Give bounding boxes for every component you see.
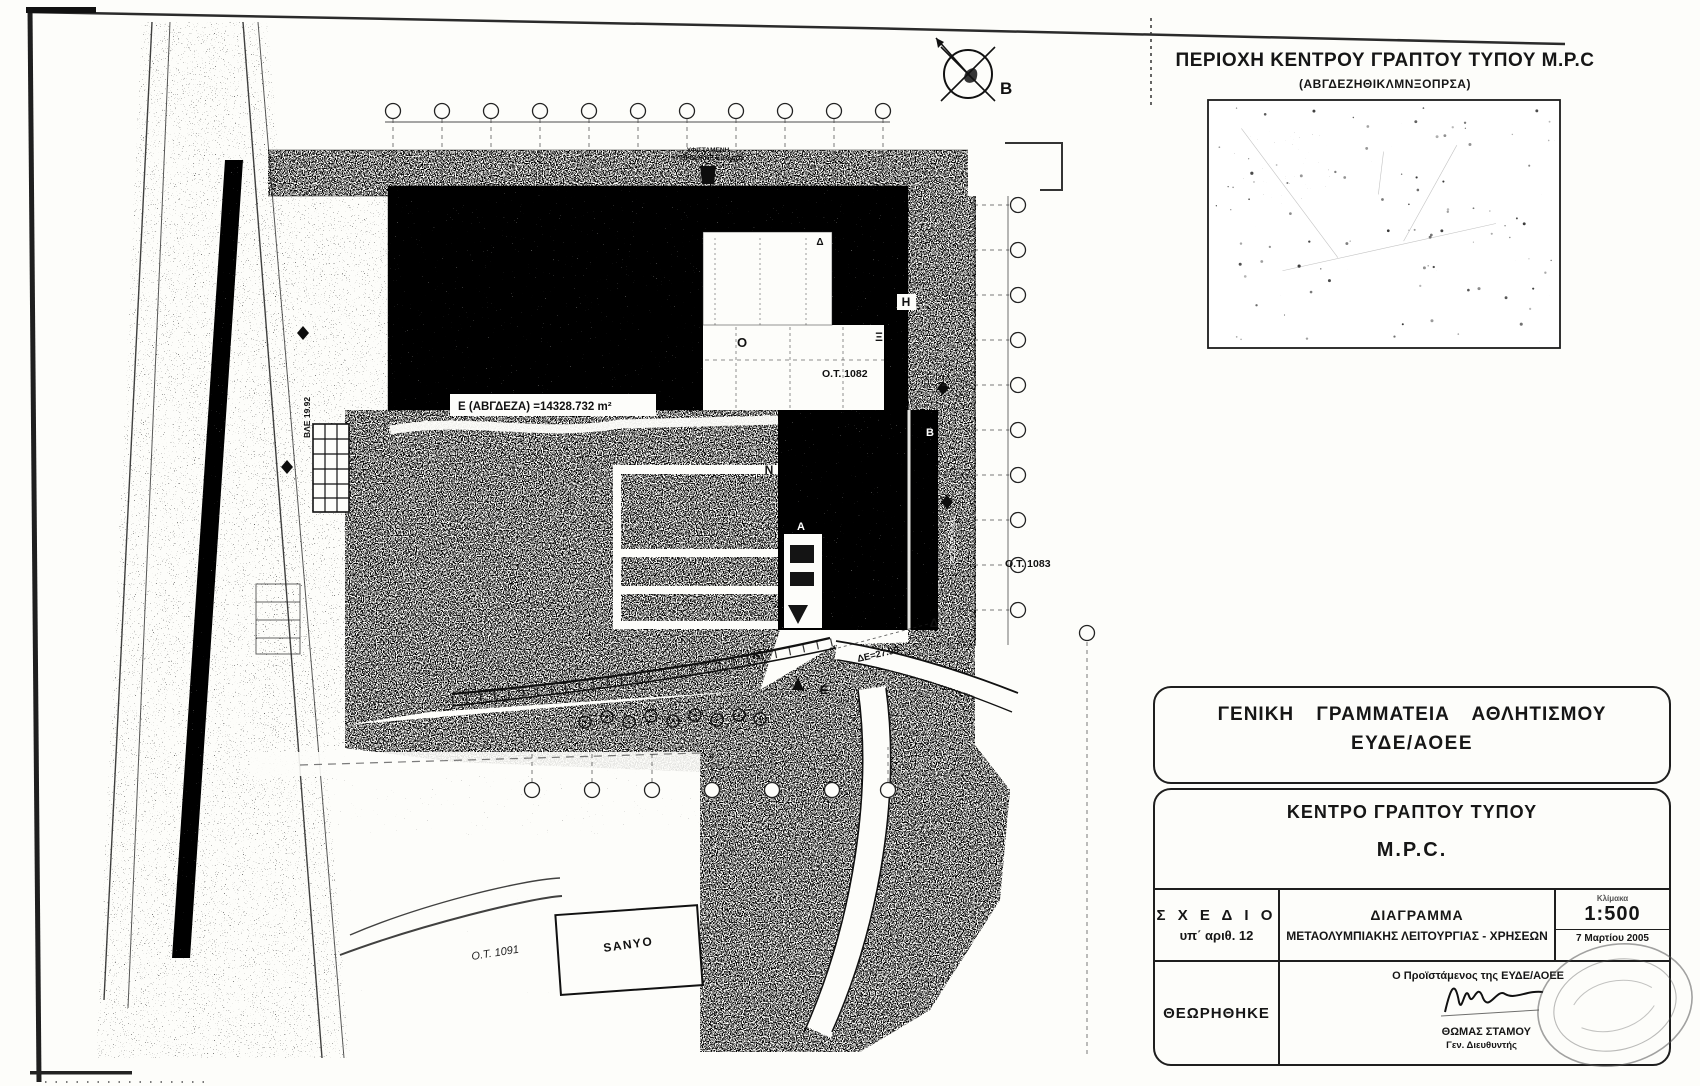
map-dot: [1248, 198, 1250, 200]
map-dot: [1433, 266, 1435, 268]
map-dot: [1414, 120, 1417, 123]
titleblock-drawing: ΚΕΝΤΡΟ ΓΡΑΠΤΟΥ ΤΥΠΟΥ Μ.Ρ.C. Σ Χ Ε Δ Ι Ο …: [1153, 788, 1671, 1066]
map-dot: [1248, 158, 1249, 159]
map-dot: [1417, 189, 1420, 192]
map-dot: [1549, 121, 1551, 123]
axis-circle: [1011, 333, 1026, 348]
map-dot: [1239, 263, 1242, 266]
map-dot: [1236, 107, 1237, 108]
map-dot: [1312, 110, 1315, 113]
axis-circle: [825, 783, 840, 798]
map-dot: [1535, 109, 1538, 112]
axis-circle: [582, 104, 597, 119]
boundary-letter: Ξ: [875, 330, 883, 344]
map-dot: [1260, 260, 1263, 263]
map-dot: [1216, 205, 1217, 206]
map-dot: [1308, 240, 1310, 242]
map-dot: [1544, 272, 1546, 274]
map-dot: [1452, 126, 1454, 128]
map-dot: [1365, 147, 1368, 150]
approval-row: ΘΕΩΡΗΘΗΚΕ Ο Προϊστάμενος της ΕΥΔΕ/ΑΟΕΕ Θ…: [1155, 960, 1669, 1064]
street-label: ΠΕΖΟΔΡΟΜΟΣ: [950, 515, 957, 565]
map-dot: [1300, 174, 1303, 177]
axis-circle: [1011, 288, 1026, 303]
map-dot: [1240, 339, 1241, 340]
scanned-site-plan-page: Ε (ΑΒΓΔΕΖΑ) =14328.732 m²: [0, 0, 1700, 1086]
map-dot: [1310, 291, 1313, 294]
map-dot: [1529, 308, 1531, 310]
map-dot: [1423, 107, 1425, 109]
map-dot: [1464, 122, 1466, 124]
drawing-date: 7 Μαρτίου 2005: [1556, 929, 1669, 944]
map-dot: [1387, 229, 1390, 232]
map-dot: [1227, 186, 1228, 187]
area-label: Ε (ΑΒΓΔΕΖΑ) =14328.732 m²: [458, 401, 612, 413]
bd-label: ΒΛΕ 19.92: [302, 397, 312, 438]
axis-circle: [1011, 468, 1026, 483]
titleblock-organization: ΓΕΝΙΚΗ ΓΡΑΜΜΑΤΕΙΑ ΑΘΛΗΤΙΣΜΟΥ ΕΥΔΕ/ΑΟΕΕ: [1153, 686, 1671, 784]
entrance-label-line2: ΥΠΗΡΕΣΙΑΚΗ ΕΙΣΟΔΟΣ: [672, 155, 744, 162]
axis-circle: [827, 104, 842, 119]
map-dot: [1289, 212, 1292, 215]
boundary-letter: Ε: [820, 683, 828, 697]
map-dot: [1366, 125, 1369, 128]
map-dot: [1532, 288, 1534, 290]
inset-key-map: [1208, 100, 1560, 348]
axis-circle: [876, 104, 891, 119]
map-dot: [1276, 164, 1278, 166]
map-dot: [1269, 246, 1271, 248]
map-dot: [1512, 134, 1513, 135]
axis-circle: [484, 104, 499, 119]
approved-label: ΘΕΩΡΗΘΗΚΕ: [1155, 1005, 1278, 1022]
map-dot: [1473, 242, 1474, 243]
map-dot: [1520, 323, 1523, 326]
map-dot: [1286, 182, 1288, 184]
inset-map-subtitle: (ΑΒΓΔΕΖΗΘΙΚΛΜΝΞΟΠΡΣΑ): [1120, 77, 1650, 91]
axis-circle: [1011, 378, 1026, 393]
tree-icon: [694, 714, 696, 716]
approval-cell: ΘΕΩΡΗΘΗΚΕ: [1155, 962, 1280, 1064]
plan-number-cell: Σ Χ Ε Δ Ι Ο υπ΄ αριθ. 12: [1155, 890, 1280, 960]
map-dot: [1516, 217, 1518, 219]
map-dot: [1401, 174, 1402, 175]
map-dot: [1550, 260, 1551, 261]
entrance-label-line1: ΥΦΙΣΤΑΜΕΝΗ: [687, 147, 730, 154]
map-dot: [1343, 176, 1346, 179]
map-dot: [1423, 266, 1426, 269]
map-dot: [1447, 211, 1449, 213]
map-dot: [1320, 268, 1321, 269]
axis-circle: [645, 783, 660, 798]
tree-icon: [738, 714, 740, 716]
signatory-title: Γεν. Διευθυντής: [1446, 1040, 1517, 1051]
map-dot: [1548, 140, 1550, 142]
map-dot: [1255, 304, 1257, 306]
axis-circle: [1011, 603, 1026, 618]
axis-circle: [1011, 243, 1026, 258]
boundary-letter: Β: [926, 427, 934, 439]
map-dot: [1334, 171, 1336, 173]
boundary-letter: Κ: [753, 648, 762, 662]
map-dot: [1505, 296, 1508, 299]
map-dot: [1244, 275, 1247, 278]
map-dot: [1477, 287, 1480, 290]
axis-circle: [585, 783, 600, 798]
axis-circle: [881, 783, 896, 798]
block-label-ot1083: Ο.Τ. 1083: [1005, 558, 1051, 570]
map-dot: [1402, 323, 1404, 325]
project-abbreviation: Μ.Ρ.C.: [1155, 839, 1669, 862]
axis-circle: [1011, 198, 1026, 213]
map-dot: [1236, 336, 1238, 338]
map-dot: [1414, 229, 1416, 231]
scale-label: Κλίμακα: [1556, 894, 1669, 903]
tree-icon: [759, 718, 761, 720]
map-dot: [1528, 258, 1529, 259]
map-dot: [1345, 242, 1348, 245]
boundary-letter: Η: [902, 295, 911, 309]
map-dot: [1528, 165, 1530, 167]
axis-circle: [435, 104, 450, 119]
tree-icon: [584, 721, 586, 723]
drawing-title: ΔΙΑΓΡΑΜΜΑ: [1280, 907, 1554, 923]
map-dot: [1458, 333, 1460, 335]
north-arrow-icon: Β: [936, 38, 1012, 101]
axis-circle: [386, 104, 401, 119]
map-dot: [1442, 180, 1444, 182]
map-dot: [1230, 209, 1231, 210]
map-dot: [1232, 187, 1233, 188]
drawing-info-row: Σ Χ Ε Δ Ι Ο υπ΄ αριθ. 12 ΔΙΑΓΡΑΜΜΑ ΜΕΤΑΟ…: [1155, 888, 1669, 960]
map-dot: [1427, 265, 1429, 267]
map-dot: [1306, 337, 1308, 339]
map-dot: [1253, 181, 1254, 182]
map-dot: [1489, 210, 1490, 211]
map-dot: [1419, 285, 1421, 287]
tree-icon: [716, 719, 718, 721]
entrance-marker-icon: [700, 166, 716, 184]
axis-circle: [1080, 626, 1095, 641]
map-dot: [1219, 146, 1221, 148]
axis-circle: [680, 104, 695, 119]
axis-circle: [1011, 423, 1026, 438]
tree-icon: [628, 721, 630, 723]
map-dot: [1523, 222, 1526, 225]
signature-cell: Ο Προϊστάμενος της ΕΥΔΕ/ΑΟΕΕ ΘΩΜΑΣ ΣΤΑΜΟ…: [1280, 962, 1669, 1064]
organization-name: ΓΕΝΙΚΗ ΓΡΑΜΜΑΤΕΙΑ ΑΘΛΗΤΙΣΜΟΥ: [1155, 704, 1669, 726]
area-label-band: Ε (ΑΒΓΔΕΖΑ) =14328.732 m²: [450, 394, 656, 416]
map-dot: [1349, 240, 1351, 242]
map-dot: [1447, 208, 1449, 210]
map-dot: [1353, 117, 1354, 118]
block-label-ot1082: Ο.Τ. 1082: [822, 368, 868, 380]
map-dot: [1250, 172, 1253, 175]
inset-map-title: ΠΕΡΙΟΧΗ ΚΕΝΤΡΟΥ ΓΡΑΠΤΟΥ ΤΥΠΟΥ Μ.Ρ.C: [1120, 50, 1650, 72]
map-dot: [1430, 319, 1433, 322]
plan-number: υπ΄ αριθ. 12: [1155, 928, 1278, 943]
map-dot: [1467, 289, 1470, 292]
signatory-name: ΘΩΜΑΣ ΣΤΑΜΟΥ: [1442, 1026, 1531, 1038]
map-dot: [1504, 225, 1505, 226]
project-header: ΚΕΝΤΡΟ ΓΡΑΠΤΟΥ ΤΥΠΟΥ Μ.Ρ.C.: [1155, 790, 1669, 888]
project-title: ΚΕΝΤΡΟ ΓΡΑΠΤΟΥ ΤΥΠΟΥ: [1155, 802, 1669, 823]
map-dot: [1416, 176, 1418, 178]
axis-circle: [765, 783, 780, 798]
scale-value: 1:500: [1556, 903, 1669, 926]
drawing-subtitle: ΜΕΤΑΟΛΥΜΠΙΑΚΗΣ ΛΕΙΤΟΥΡΓΙΑΣ - ΧΡΗΣΕΩΝ: [1280, 929, 1554, 943]
signature-icon: [1439, 976, 1549, 1022]
axis-circle: [533, 104, 548, 119]
map-dot: [1468, 143, 1471, 146]
map-dot: [1473, 207, 1475, 209]
boundary-letter: Δ: [816, 237, 823, 248]
map-dot: [1491, 233, 1493, 235]
boundary-letter: Δ: [930, 616, 939, 630]
axis-circle: [778, 104, 793, 119]
tree-icon: [672, 720, 674, 722]
organization-unit: ΕΥΔΕ/ΑΟΕΕ: [1155, 733, 1669, 755]
map-dot: [1393, 335, 1395, 337]
north-letter: Β: [1000, 79, 1012, 98]
axis-circle: [631, 104, 646, 119]
map-dot: [1408, 203, 1410, 205]
drawing-title-cell: ΔΙΑΓΡΑΜΜΑ ΜΕΤΑΟΛΥΜΠΙΑΚΗΣ ΛΕΙΤΟΥΡΓΙΑΣ - Χ…: [1280, 890, 1554, 960]
plan-label: Σ Χ Ε Δ Ι Ο: [1155, 907, 1278, 924]
axis-circle: [729, 104, 744, 119]
map-dot: [1381, 198, 1384, 201]
axis-circle: [705, 783, 720, 798]
scale-cell: Κλίμακα 1:500 7 Μαρτίου 2005: [1554, 890, 1669, 960]
map-dot: [1509, 237, 1510, 238]
map-dot: [1443, 134, 1446, 137]
tree-icon: [606, 716, 608, 718]
map-dot: [1284, 314, 1285, 315]
boundary-letter: Ν: [765, 463, 774, 477]
boundary-letter: Ο: [737, 335, 747, 350]
map-dot: [1465, 128, 1466, 129]
map-dot: [1328, 279, 1331, 282]
map-dot: [1240, 242, 1242, 244]
map-dot: [1440, 229, 1443, 232]
axis-circle: [1011, 513, 1026, 528]
map-dot: [1436, 135, 1439, 138]
boundary-letter: Α: [797, 521, 805, 533]
map-dot: [1264, 113, 1267, 116]
tree-icon: [650, 715, 652, 717]
map-dot: [1430, 234, 1433, 237]
axis-circle: [525, 783, 540, 798]
